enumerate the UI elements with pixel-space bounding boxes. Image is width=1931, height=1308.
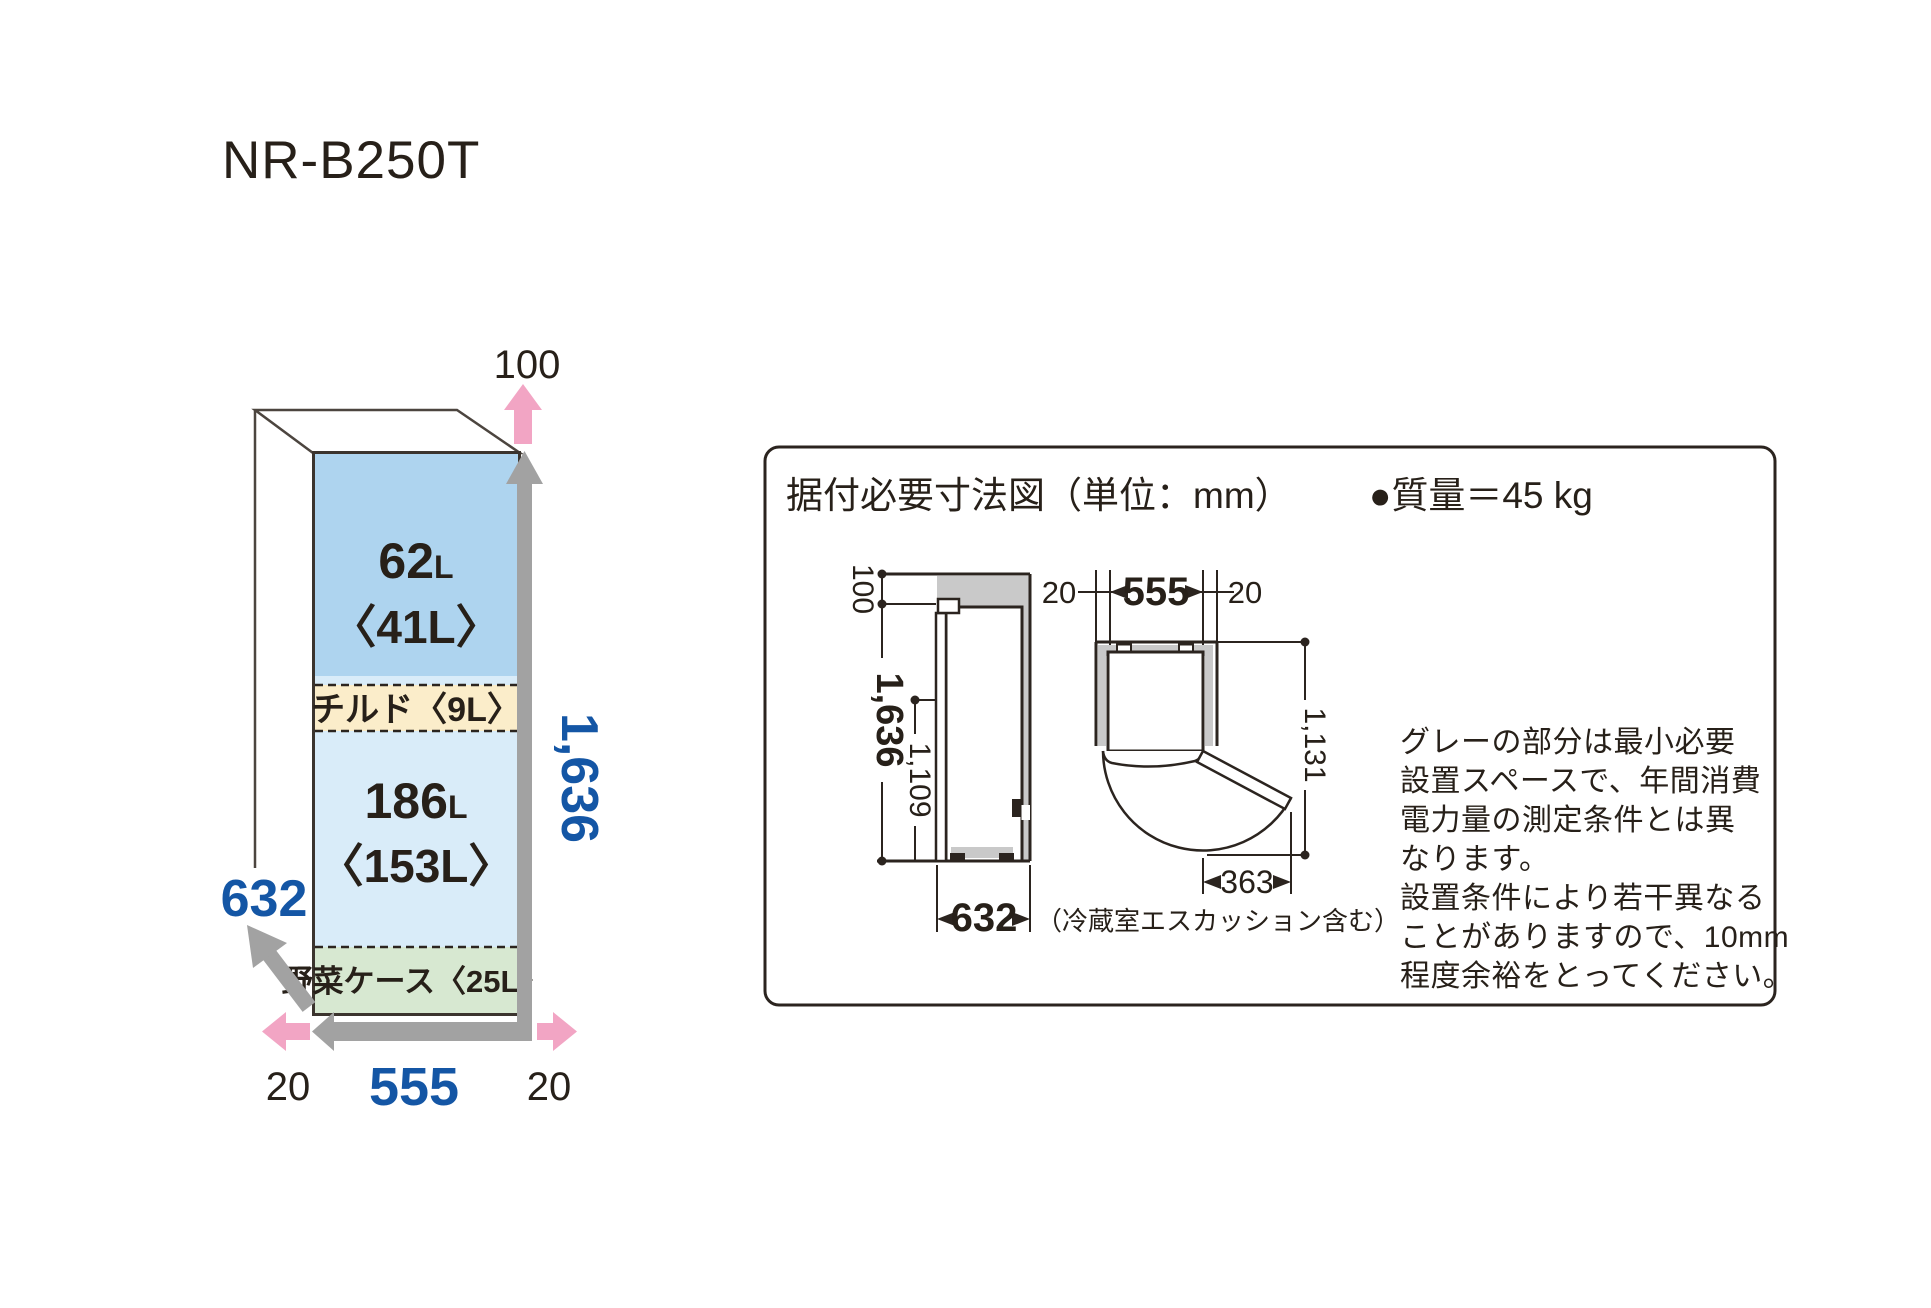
left-clearance-arrow [262, 1012, 310, 1051]
top-gap-left-value: 20 [1042, 575, 1076, 610]
right-clearance-head [553, 1012, 577, 1051]
top-width-value: 555 [1123, 570, 1190, 614]
section-gap [315, 676, 518, 685]
page: NR-B250T 62L 〈41L〉 チルド〈9L〉 186L 〈153L〉 野… [0, 0, 1931, 1308]
side-door-height-value: 1,109 [903, 742, 936, 817]
side-door [936, 613, 946, 861]
height-arrow-shaft [517, 476, 532, 1041]
left-clearance-head [262, 1012, 286, 1051]
top-gap-right-value: 20 [1228, 575, 1262, 610]
dim-dot [878, 857, 887, 866]
gap-left-value: 20 [266, 1065, 311, 1109]
freezer-sublabel: 〈41L〉 [330, 601, 501, 653]
side-rear-gap [1022, 805, 1031, 820]
right-clearance-arrow [537, 1012, 577, 1051]
capacity-figure: 62L 〈41L〉 チルド〈9L〉 186L 〈153L〉 野菜ケース〈25L〉 [221, 343, 608, 1117]
side-rear-notch [1012, 799, 1022, 817]
note-line: 設置条件により若干異なる [1400, 882, 1765, 915]
note-line: 設置スペースで、年間消費 [1400, 765, 1761, 798]
width-arrow [312, 1012, 532, 1051]
width-arrow-head [312, 1012, 334, 1051]
left-clearance-shaft [284, 1023, 310, 1040]
note-line: 電力量の測定条件とは異 [1400, 804, 1736, 837]
door-swing-value: 363 [1220, 864, 1273, 900]
top-left-space [1098, 645, 1106, 746]
fridge-top-face [255, 410, 520, 453]
chilled-label: チルド〈9L〉 [311, 691, 521, 729]
installation-panel: 据付必要寸法図（単位：mm） ●質量＝45 kg [765, 447, 1793, 1005]
top-right-space [1205, 645, 1213, 746]
spec-diagram: NR-B250T 62L 〈41L〉 チルド〈9L〉 186L 〈153L〉 野… [0, 0, 1931, 1308]
top-clearance-shaft [514, 408, 532, 444]
depth-note: （冷蔵室エスカッション含む） [1036, 906, 1400, 936]
height-value: 1,636 [550, 713, 608, 843]
note-line: ことがありますので、10mm [1400, 921, 1789, 954]
gap-right-value: 20 [527, 1065, 572, 1109]
note-line: なります。 [1400, 843, 1550, 876]
fridge-section [315, 731, 518, 947]
dim-dot [1301, 638, 1310, 647]
depth-value: 632 [221, 870, 308, 928]
side-foot-rear [999, 853, 1014, 861]
top-clearance-head [504, 384, 542, 410]
model-title: NR-B250T [222, 131, 480, 190]
fridge-sublabel: 〈153L〉 [318, 840, 515, 892]
open-depth-value: 1,131 [1298, 707, 1331, 782]
vegetable-label: 野菜ケース〈25L〉 [282, 964, 551, 999]
top-clearance-arrow [504, 384, 542, 444]
width-value: 555 [369, 1057, 459, 1117]
side-foot-front [950, 853, 965, 861]
side-top-clearance-value: 100 [846, 564, 879, 614]
side-door-cap [938, 599, 959, 613]
side-depth-value: 632 [951, 896, 1018, 940]
top-clearance-value: 100 [494, 343, 561, 387]
note-line: グレーの部分は最小必要 [1400, 726, 1736, 759]
weight-label: ●質量＝45 kg [1369, 475, 1593, 516]
width-arrow-shaft [327, 1022, 532, 1041]
note-line: 程度余裕をとってください。 [1400, 960, 1793, 993]
side-body [946, 607, 1022, 861]
panel-heading: 据付必要寸法図（単位：mm） [786, 475, 1292, 516]
top-body [1108, 652, 1203, 751]
